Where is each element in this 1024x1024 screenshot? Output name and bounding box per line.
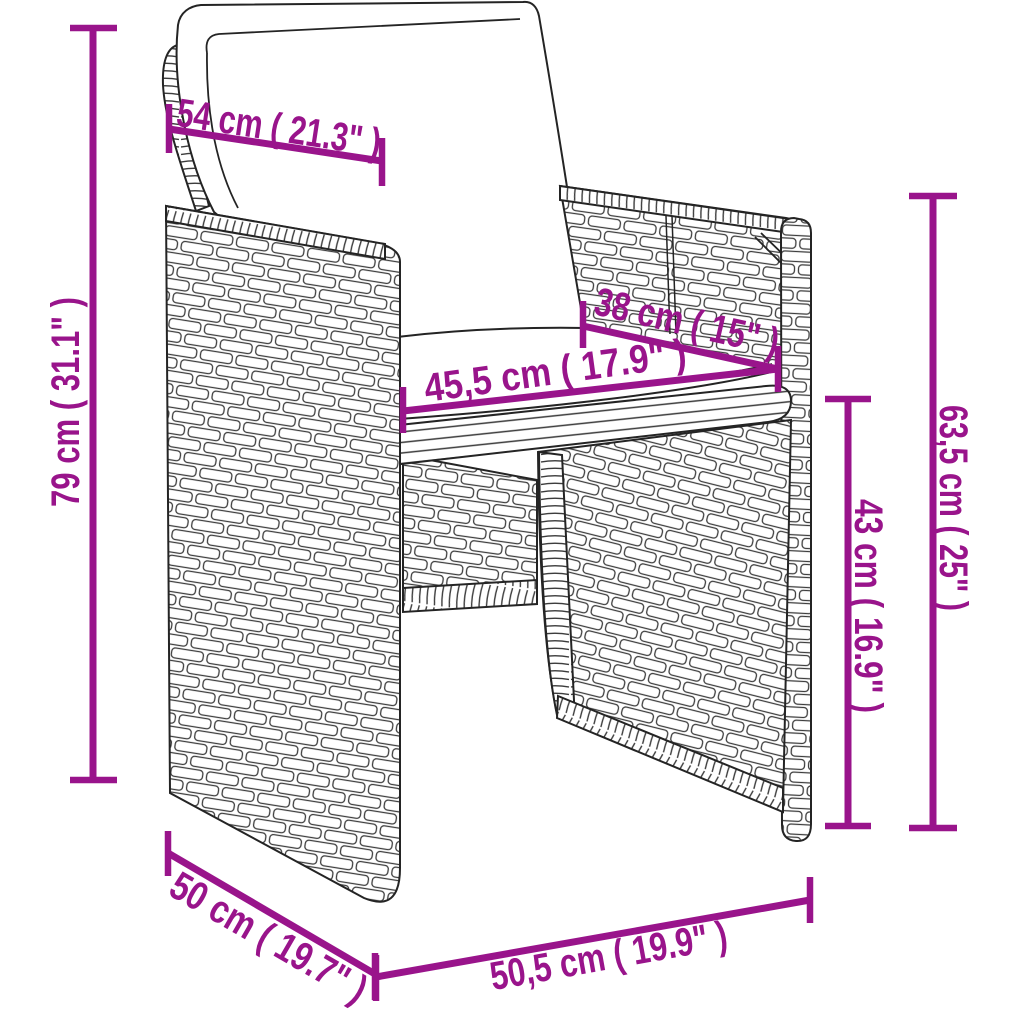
dimension-label: 63,5 cm ( 25" ) — [931, 405, 975, 611]
dimension-base-width: 50,5 cm ( 19.9" ) — [376, 877, 810, 1001]
left-side-panel — [166, 206, 400, 902]
dimension-label: 43 cm ( 16.9" ) — [846, 499, 890, 713]
dimension-label: 50,5 cm ( 19.9" ) — [487, 913, 731, 999]
chair-dimension-illustration: 54 cm ( 21.3" ) 79 cm ( 31.1" ) 38 cm ( … — [0, 0, 1024, 1024]
under-seat-far-panel — [403, 455, 537, 601]
dimension-label: 79 cm ( 31.1" ) — [44, 297, 88, 507]
product-dimension-diagram: 54 cm ( 21.3" ) 79 cm ( 31.1" ) 38 cm ( … — [0, 0, 1024, 1024]
dimension-total-height: 79 cm ( 31.1" ) — [44, 28, 117, 780]
dimension-backrest-height: 63,5 cm ( 25" ) — [909, 196, 975, 828]
dimension-seat-height: 43 cm ( 16.9" ) — [825, 399, 890, 826]
